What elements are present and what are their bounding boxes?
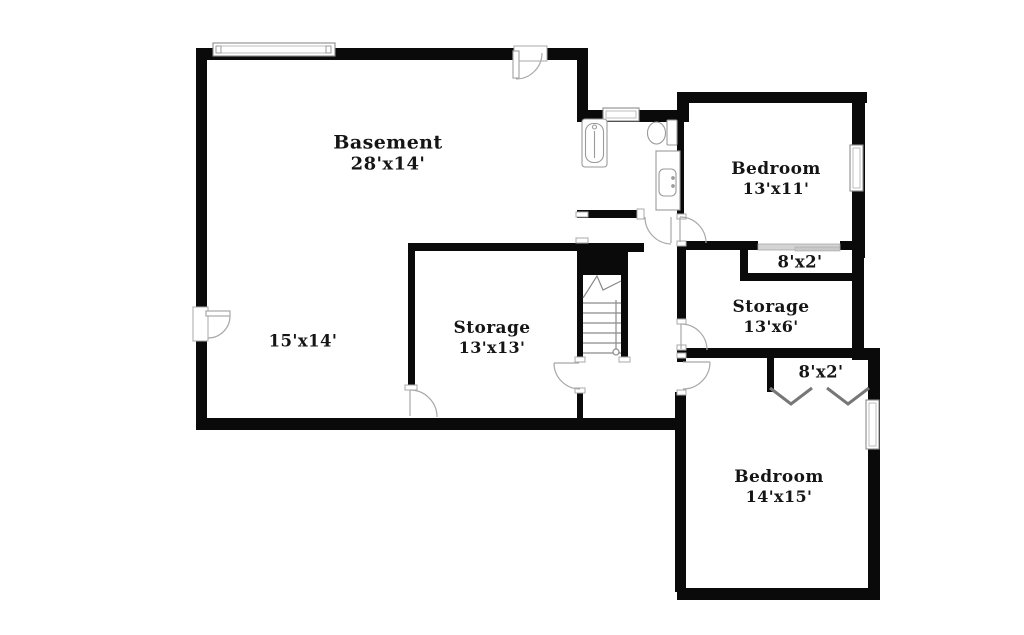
stair-break-line [583,276,621,298]
window-bathroom [603,108,639,121]
jamb-bedroom2-door-top [677,353,686,358]
bathroom-fixtures [582,119,680,210]
room-dimensions: 13'x13' [454,339,531,357]
room-dimensions: 13'x11' [731,180,821,198]
wall-basement-right [577,48,588,115]
room-label-basement: Basement 28'x14' [333,133,442,176]
wall-storage13x13-left [408,243,415,390]
jamb-passage-top [576,212,588,217]
room-label-bedroom-13x11: Bedroom 13'x11' [731,160,821,198]
wall-left-upper [196,48,207,308]
wall-bedroom1-bottom-right [840,241,854,250]
sliding-door-closet-top [758,244,840,251]
bifold-doors-closet-bottom [770,388,869,404]
wall-storage13x13-top [408,243,577,251]
window-bedroom1 [850,145,863,191]
wall-stairwell-left [577,275,583,362]
toilet [648,120,678,145]
jamb-storage13x6-door-top [677,319,686,324]
floor-plan-page: Basement 28'x14' 15'x14' Storage 13'x13'… [0,0,1024,635]
wall-spine-upper [677,243,686,324]
window-basement-top [213,43,335,56]
window-bedroom2 [866,400,879,449]
wall-right-middle [852,252,864,358]
bathtub [582,119,607,167]
room-dimensions: 28'x14' [333,155,442,176]
door-stair-landing [554,363,580,389]
jamb-stair-door-top [575,357,585,362]
sink-vanity [656,151,680,210]
room-label-area-15x14: 15'x14' [269,333,338,352]
wall-bedroom1-top [677,92,867,103]
room-name: Bedroom [731,160,821,180]
door-bathroom [645,217,671,244]
room-name: Storage [733,298,810,318]
wall-bottom-left-section [196,418,686,430]
room-label-closet-8x2-bottom: 8'x2' [799,364,844,383]
room-name: Storage [454,319,531,339]
room-dimensions: 15'x14' [269,333,338,352]
staircase [583,276,621,355]
door-bedroom2 [683,362,710,389]
room-name: Basement [333,133,442,155]
wall-closet-top-bottom [740,273,856,281]
jamb-bedroom1-door-bottom [677,241,686,246]
wall-bedroom2-bottom [677,588,880,600]
room-label-bedroom-14x15: Bedroom 14'x15' [734,468,824,506]
room-label-storage-13x6: Storage 13'x6' [733,298,810,336]
room-dimensions: 14'x15' [734,488,824,506]
room-label-closet-8x2-top: 8'x2' [778,254,823,273]
door-bedroom1 [680,217,706,243]
room-dimensions: 13'x6' [733,318,810,336]
jamb-storage13x13-door [405,385,417,390]
door-left-entry [206,311,230,338]
room-dimensions: 8'x2' [799,364,844,383]
wall-stairwell-right [621,275,628,360]
stair-newel [613,349,619,355]
door-storage13x13 [410,390,437,417]
room-name: Bedroom [734,468,824,488]
jamb-stair-right-bottom [619,357,630,362]
wall-left-lower [196,340,207,430]
room-dimensions: 8'x2' [778,254,823,273]
wall-closet-bottom-left [767,358,774,392]
jamb-bedroom2-door-bottom [677,390,686,395]
wall-stub-below-stairs [577,390,583,418]
jamb-passage-bottom [576,238,588,243]
room-label-storage-13x13: Storage 13'x13' [454,319,531,357]
jamb-bath-door [637,209,644,219]
wall-stair-header [577,243,628,275]
wall-bedroom2-right [868,348,880,600]
